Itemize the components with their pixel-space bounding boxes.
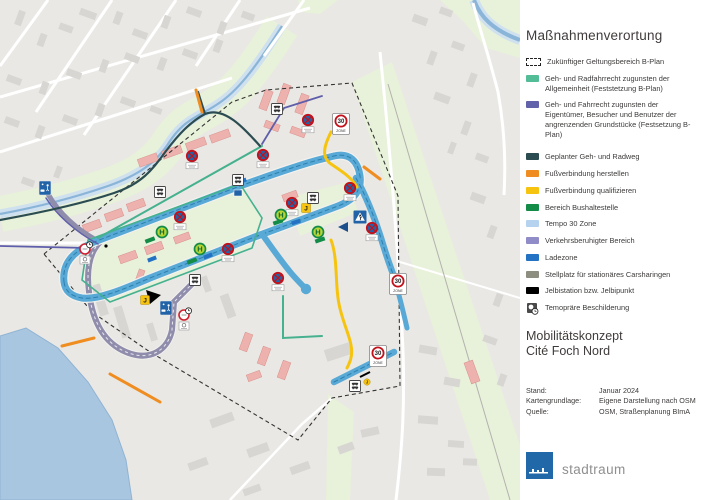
zone30-sign: 30ZONE [333, 114, 350, 135]
jelbi-point-sign-small: J [364, 379, 370, 385]
stadtraum-logo-icon [526, 452, 553, 479]
carsharing-sign [308, 193, 319, 204]
legend-swatch [526, 237, 539, 244]
legend-label: Tempo 30 Zone [545, 219, 596, 229]
legend-swatch [526, 204, 539, 211]
legend-swatch [526, 153, 539, 160]
plan-title-line2: Cité Foch Nord [526, 344, 699, 359]
legend-item: Geh- und Radfahrrecht zugunsten der Allg… [526, 74, 699, 94]
bus-stop-sign: H [195, 244, 206, 255]
jelbi-point-sign: J [141, 296, 150, 305]
meta-row: Kartengrundlage:Eigene Darstellung nach … [526, 396, 699, 406]
legend-swatch [526, 187, 539, 194]
legend-label: Bereich Bushaltestelle [545, 203, 618, 213]
legend-item: Temopräre Beschilderung [526, 303, 699, 314]
svg-text:30: 30 [395, 279, 402, 285]
svg-text:H: H [315, 228, 320, 237]
legend-title: Maßnahmenverortung [526, 28, 699, 43]
legend-item: Fußverbindung qualifizieren [526, 186, 699, 196]
meta-row: Quelle:OSM, Straßenplanung BImA [526, 407, 699, 417]
svg-text:ZONE: ZONE [373, 361, 383, 365]
legend-label: Fußverbindung herstellen [545, 169, 629, 179]
legend-label: Verkehrsberuhigter Bereich [545, 236, 635, 246]
svg-text:H: H [159, 228, 164, 237]
legend-swatch [526, 170, 539, 177]
carsharing-sign [350, 381, 361, 392]
legend-swatch [526, 271, 539, 278]
stadtraum-logo-text: stadtraum [562, 462, 626, 479]
zone30-sign: 30ZONE [390, 274, 407, 295]
bus-stop-sign: H [157, 227, 168, 238]
legend-item: Geh- und Fahrrecht zugunsten der Eigentü… [526, 100, 699, 139]
plan-title-line1: Mobilitätskonzept [526, 329, 699, 344]
meta-label: Stand: [526, 386, 599, 396]
play-street-sign [39, 181, 51, 195]
legend-swatch [526, 287, 539, 294]
meta-value: OSM, Straßenplanung BImA [599, 407, 699, 417]
svg-text:ZONE: ZONE [393, 289, 403, 293]
legend-label: Geh- und Fahrrecht zugunsten der Eigentü… [545, 100, 699, 139]
no-stopping-sign [186, 151, 198, 169]
legend-item-list: Zukünftiger Geltungsbereich B-PlanGeh- u… [526, 57, 699, 314]
play-street-sign [160, 301, 172, 315]
legend-item: Geplanter Geh- und Radweg [526, 152, 699, 162]
legend-item: Fußverbindung herstellen [526, 169, 699, 179]
legend-swatch [526, 101, 539, 108]
legend-label: Geh- und Radfahrrecht zugunsten der Allg… [545, 74, 699, 94]
carsharing-sign [190, 275, 201, 286]
svg-text:ZONE: ZONE [336, 129, 346, 133]
legend-label: Ladezone [545, 253, 577, 263]
bus-stop-sign: H [313, 227, 324, 238]
legend-label: Zukünftiger Geltungsbereich B-Plan [547, 57, 664, 67]
legend-label: Temopräre Beschilderung [545, 303, 629, 313]
map-canvas: 30ZONE30ZONE30ZONEHHHHJJJ [0, 0, 520, 500]
zone30-sign: 30ZONE [370, 346, 387, 367]
meta-value: Eigene Darstellung nach OSM [599, 396, 699, 406]
no-stopping-sign [272, 273, 284, 291]
legend-item: Bereich Bushaltestelle [526, 203, 699, 213]
svg-text:30: 30 [375, 351, 382, 357]
no-stopping-sign [366, 223, 378, 241]
legend-swatch-dashed [526, 58, 541, 66]
plan-title: Mobilitätskonzept Cité Foch Nord [526, 329, 699, 359]
no-stopping-sign [222, 244, 234, 262]
map-area: 30ZONE30ZONE30ZONEHHHHJJJ [0, 0, 520, 500]
carsharing-sign [233, 175, 244, 186]
pedestrian-crossing-sign [354, 211, 367, 224]
svg-text:30: 30 [338, 119, 345, 125]
temporary-sign-icon [526, 302, 539, 314]
legend-label: Stellplatz für stationäres Carsharingen [545, 270, 670, 280]
legend-item: Zukünftiger Geltungsbereich B-Plan [526, 57, 699, 67]
legend-item: Jelbistation bzw. Jelbipunkt [526, 286, 699, 296]
svg-text:H: H [278, 211, 283, 220]
meta-label: Kartengrundlage: [526, 396, 599, 406]
legend-label: Jelbistation bzw. Jelbipunkt [545, 286, 634, 296]
bus-stop-sign: H [276, 210, 287, 221]
legend-item: Ladezone [526, 253, 699, 263]
meta-value: Januar 2024 [599, 386, 699, 396]
logo: stadtraum [526, 452, 699, 479]
legend-swatch [526, 220, 539, 227]
no-stopping-sign [257, 150, 269, 168]
legend-swatch [526, 254, 539, 261]
carsharing-sign [272, 104, 283, 115]
meta-block: Stand:Januar 2024Kartengrundlage:Eigene … [526, 386, 699, 417]
legend-label: Geplanter Geh- und Radweg [545, 152, 640, 162]
legend-swatch [526, 75, 539, 82]
carsharing-sign [155, 187, 166, 198]
legend-item: Stellplatz für stationäres Carsharingen [526, 270, 699, 280]
no-stopping-sign [286, 198, 298, 216]
svg-text:J: J [143, 297, 147, 304]
meta-row: Stand:Januar 2024 [526, 386, 699, 396]
no-stopping-sign [344, 183, 356, 201]
legend-item: Tempo 30 Zone [526, 219, 699, 229]
meta-label: Quelle: [526, 407, 599, 417]
legend-panel: Maßnahmenverortung Zukünftiger Geltungsb… [520, 0, 707, 500]
jelbi-point-sign: J [302, 204, 311, 213]
svg-text:H: H [197, 245, 202, 254]
mobility-concept-plan: 30ZONE30ZONE30ZONEHHHHJJJ Maßnahmenveror… [0, 0, 707, 500]
legend-label: Fußverbindung qualifizieren [545, 186, 636, 196]
svg-text:J: J [304, 205, 308, 212]
legend-item: Verkehrsberuhigter Bereich [526, 236, 699, 246]
no-stopping-sign [302, 115, 314, 133]
no-stopping-sign [174, 212, 186, 230]
